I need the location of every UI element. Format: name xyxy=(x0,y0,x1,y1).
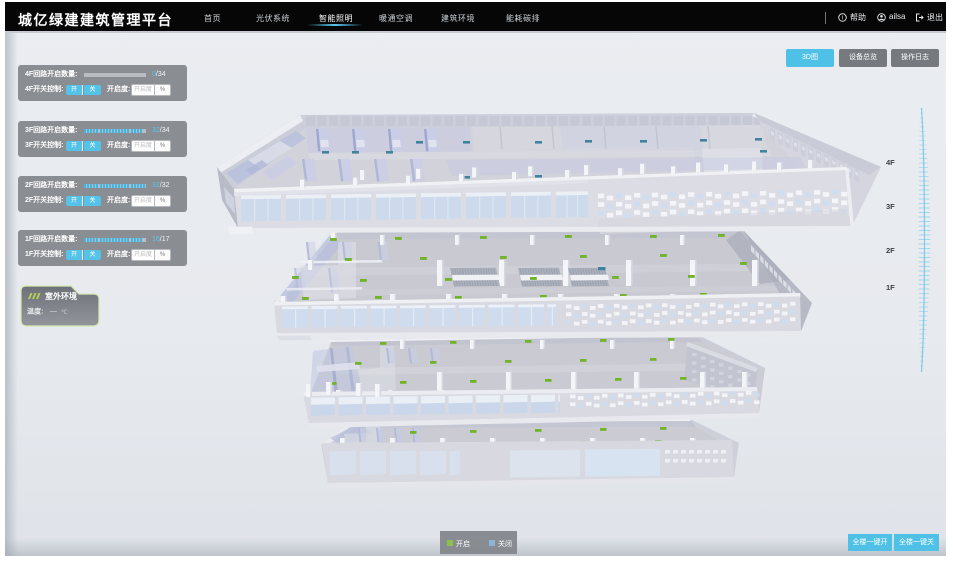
svg-text:℃: ℃ xyxy=(61,310,68,316)
svg-text:i: i xyxy=(842,16,843,22)
svg-text:室外环境: 室外环境 xyxy=(45,291,77,301)
svg-text:—: — xyxy=(50,309,57,316)
svg-text:温度:: 温度: xyxy=(27,307,43,316)
